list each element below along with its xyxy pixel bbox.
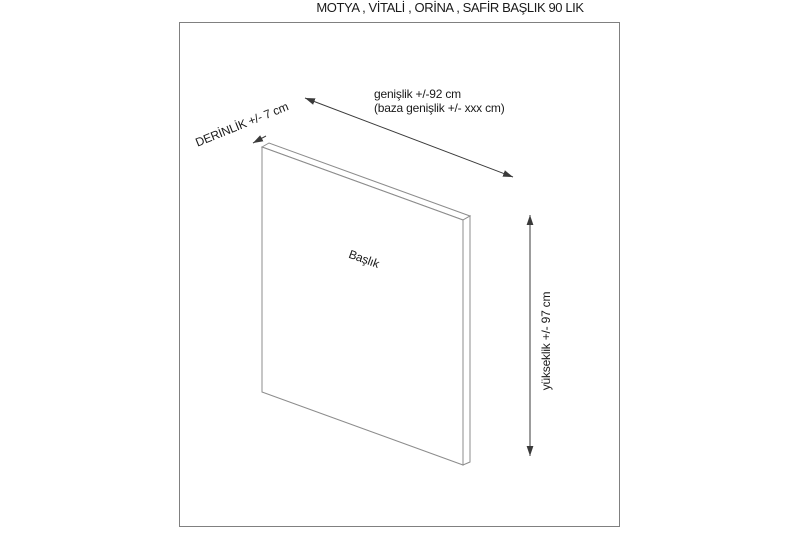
width-dimension-label: genişlik +/-92 cm (baza genişlik +/- xxx… — [374, 87, 505, 115]
panel-front-face — [262, 147, 463, 465]
depth-dimension-arrow — [253, 136, 266, 143]
width-dimension-label-line2: (baza genişlik +/- xxx cm) — [374, 101, 505, 115]
panel-side-edge-face — [463, 216, 470, 465]
technical-drawing-page: MOTYA , VİTALİ , ORİNA , SAFİR BAŞLIK 90… — [0, 0, 800, 533]
height-dimension-label: yükseklik +/- 97 cm — [539, 281, 553, 401]
width-dimension-label-line1: genişlik +/-92 cm — [374, 87, 505, 101]
panel-drawing — [0, 0, 800, 533]
